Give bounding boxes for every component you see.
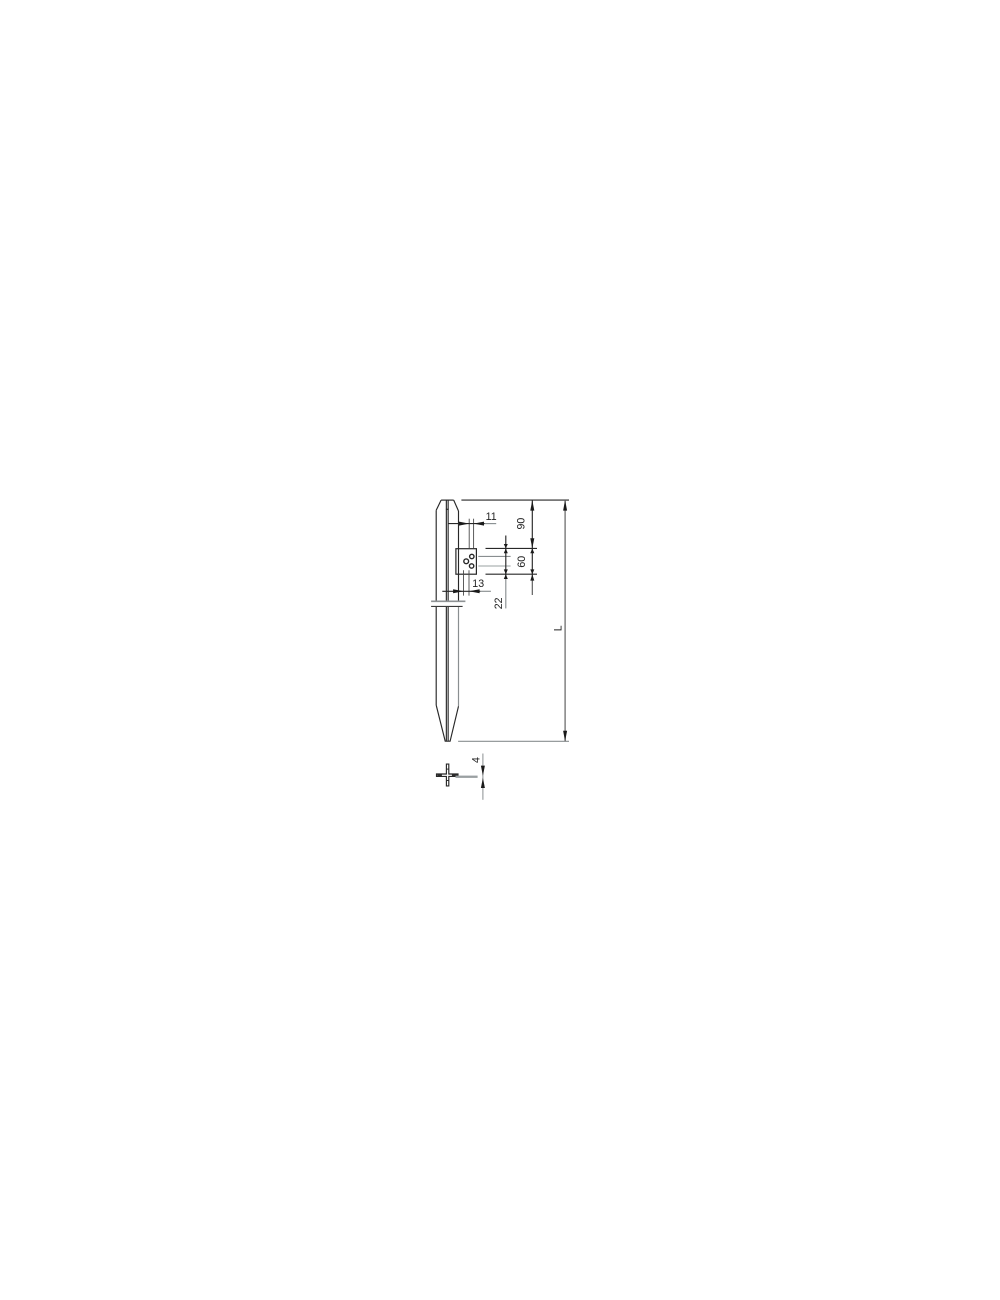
svg-text:60: 60 xyxy=(516,556,528,568)
svg-text:11: 11 xyxy=(486,511,497,523)
svg-text:L: L xyxy=(553,625,565,631)
svg-text:13: 13 xyxy=(472,578,484,590)
svg-text:90: 90 xyxy=(515,518,527,530)
svg-text:4: 4 xyxy=(471,757,483,763)
svg-text:22: 22 xyxy=(493,597,505,609)
